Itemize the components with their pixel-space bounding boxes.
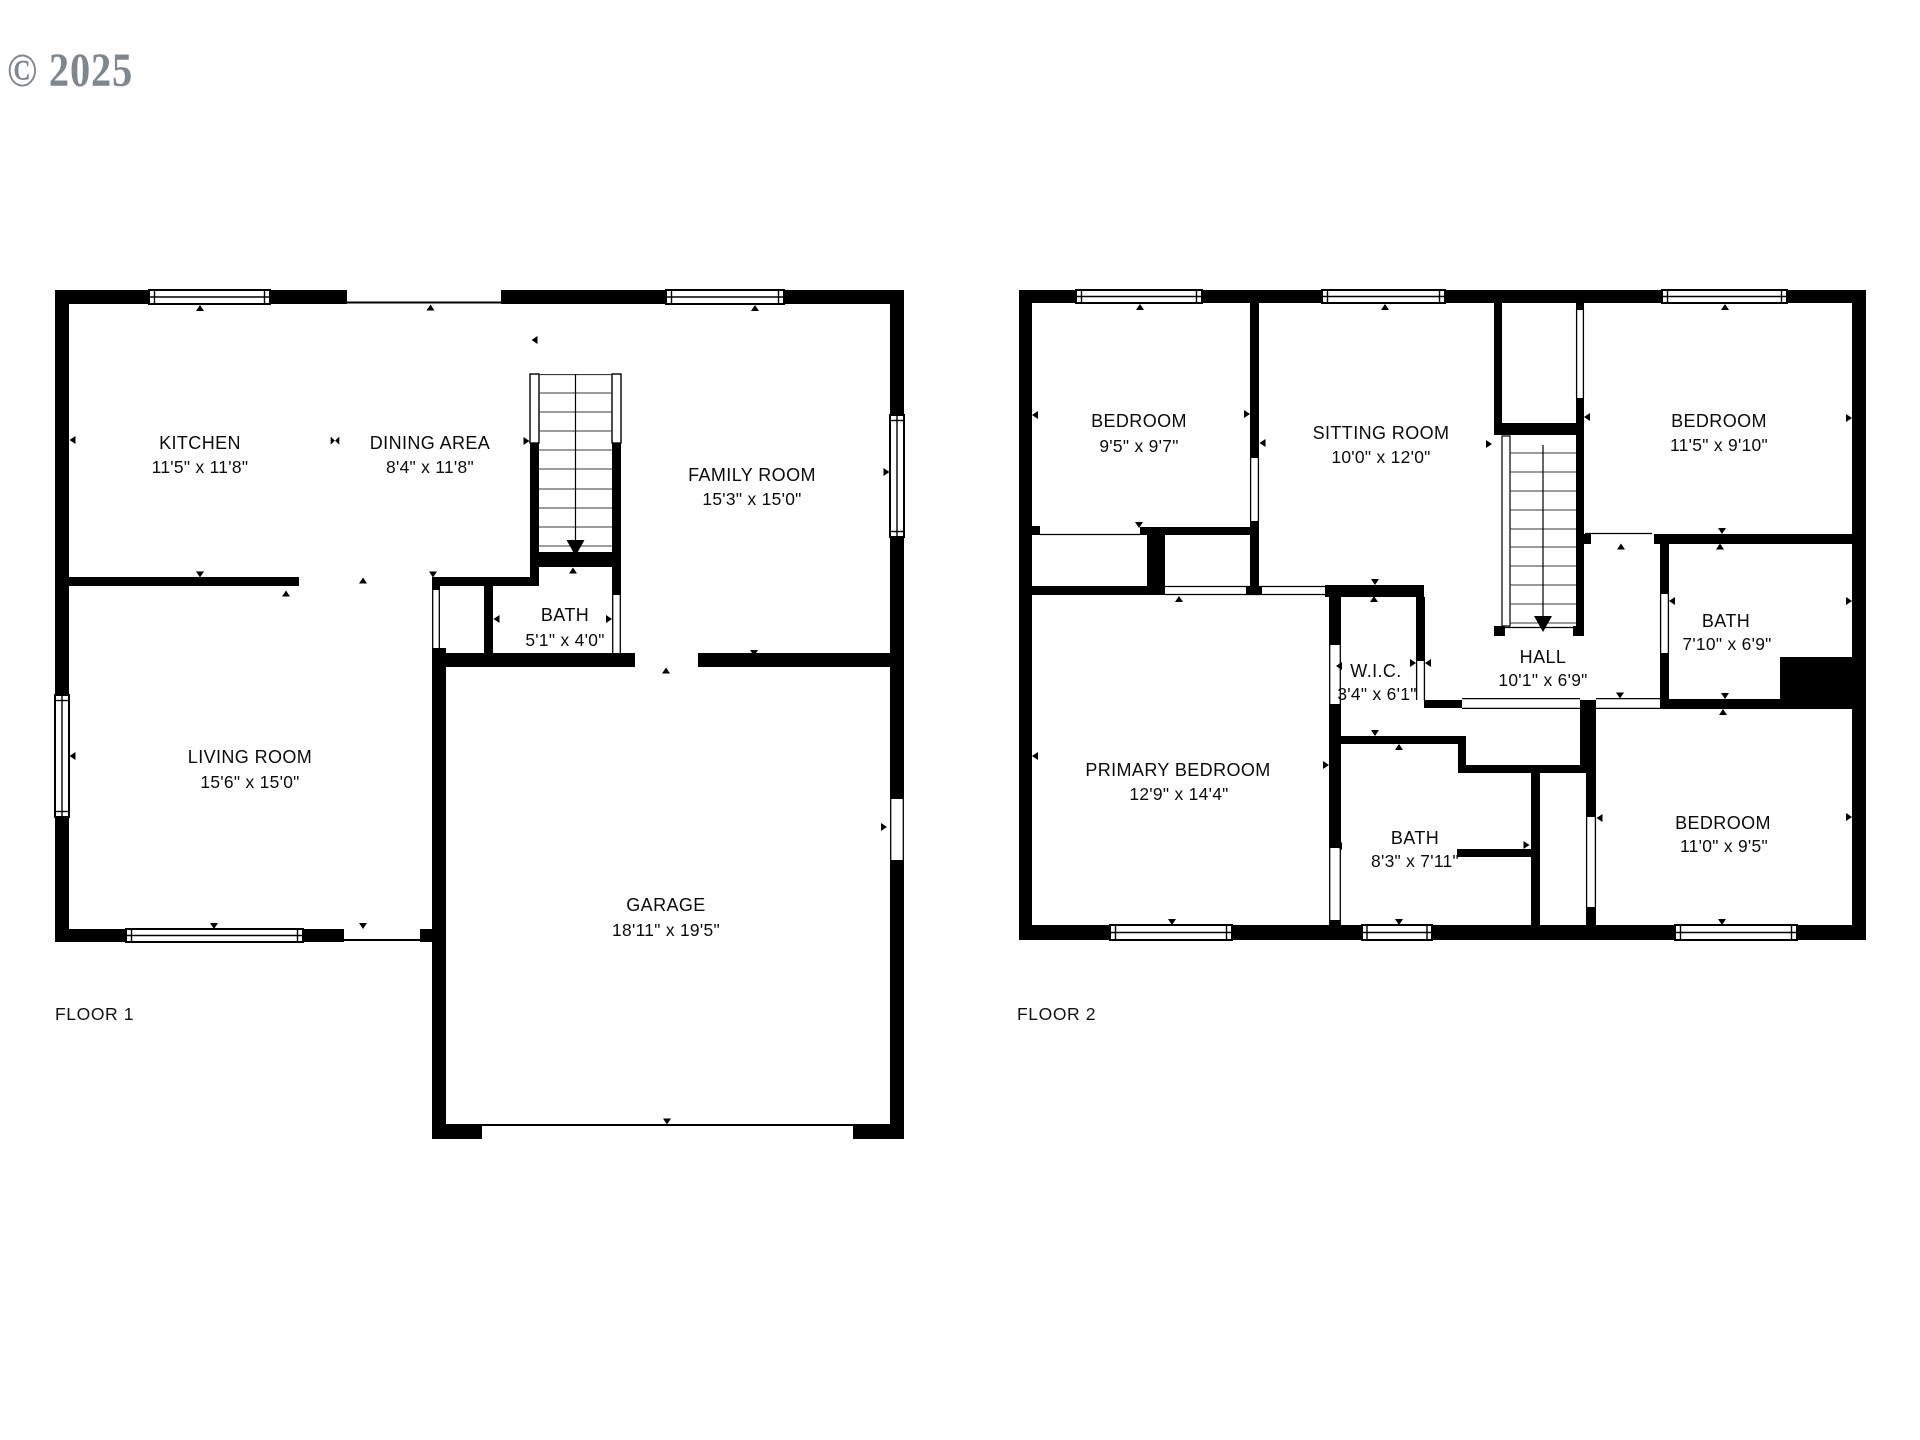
svg-text:BATH: BATH — [1702, 611, 1750, 631]
svg-text:10'1" x 6'9": 10'1" x 6'9" — [1498, 670, 1587, 690]
svg-text:W.I.C.: W.I.C. — [1350, 661, 1401, 681]
svg-text:18'11" x 19'5": 18'11" x 19'5" — [612, 920, 720, 940]
svg-text:11'0" x 9'5": 11'0" x 9'5" — [1680, 836, 1768, 856]
svg-text:15'3" x 15'0": 15'3" x 15'0" — [702, 489, 801, 509]
svg-text:BATH: BATH — [1391, 828, 1439, 848]
svg-text:10'0" x 12'0": 10'0" x 12'0" — [1331, 447, 1430, 467]
svg-text:BEDROOM: BEDROOM — [1091, 411, 1187, 431]
svg-text:© 2025: © 2025 — [7, 44, 133, 97]
svg-text:BEDROOM: BEDROOM — [1671, 411, 1767, 431]
svg-text:8'4" x 11'8": 8'4" x 11'8" — [386, 457, 474, 477]
svg-text:11'5" x 9'10": 11'5" x 9'10" — [1670, 435, 1768, 455]
svg-text:GARAGE: GARAGE — [626, 895, 705, 915]
svg-text:HALL: HALL — [1520, 647, 1567, 667]
svg-text:SITTING ROOM: SITTING ROOM — [1313, 423, 1450, 443]
svg-text:15'6" x 15'0": 15'6" x 15'0" — [200, 772, 299, 792]
svg-text:FLOOR 1: FLOOR 1 — [55, 1004, 134, 1024]
svg-text:5'1" x 4'0": 5'1" x 4'0" — [525, 630, 604, 650]
svg-text:FLOOR 2: FLOOR 2 — [1017, 1004, 1096, 1024]
svg-text:3'4" x 6'1": 3'4" x 6'1" — [1337, 684, 1416, 704]
svg-text:12'9" x 14'4": 12'9" x 14'4" — [1129, 784, 1228, 804]
svg-text:BEDROOM: BEDROOM — [1675, 813, 1771, 833]
svg-text:8'3" x 7'11": 8'3" x 7'11" — [1371, 851, 1459, 871]
svg-text:LIVING ROOM: LIVING ROOM — [188, 747, 312, 767]
svg-text:7'10" x 6'9": 7'10" x 6'9" — [1682, 634, 1771, 654]
svg-text:KITCHEN: KITCHEN — [159, 433, 241, 453]
svg-text:FAMILY ROOM: FAMILY ROOM — [688, 465, 816, 485]
svg-text:DINING AREA: DINING AREA — [370, 433, 490, 453]
svg-text:BATH: BATH — [541, 605, 589, 625]
svg-text:9'5" x 9'7": 9'5" x 9'7" — [1099, 436, 1178, 456]
svg-text:PRIMARY BEDROOM: PRIMARY BEDROOM — [1085, 760, 1270, 780]
svg-text:11'5" x 11'8": 11'5" x 11'8" — [152, 457, 249, 477]
